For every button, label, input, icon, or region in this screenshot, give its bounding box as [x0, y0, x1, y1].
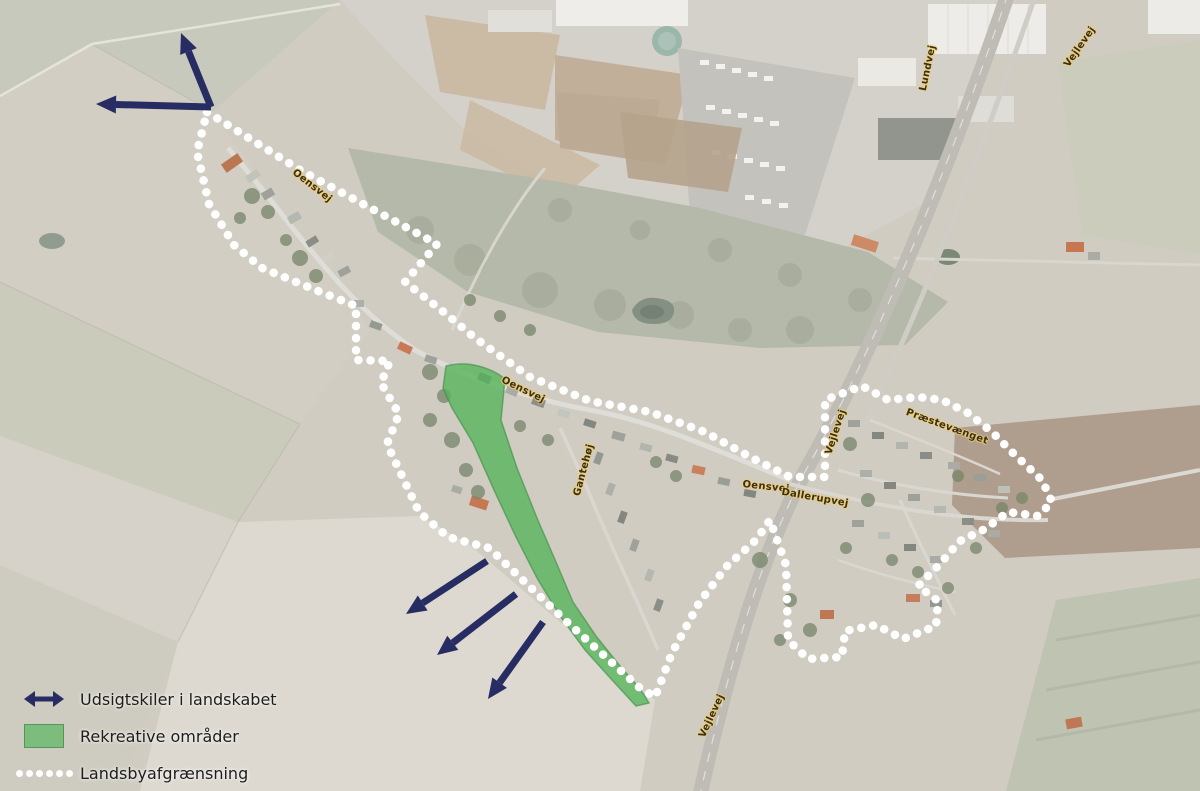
recreational-area: [443, 364, 649, 706]
legend-item-recreational-areas: Rekreative områder: [22, 723, 277, 749]
dotted-line-icon: [22, 770, 66, 777]
green-area-icon: [22, 724, 66, 748]
plan-overlays: [0, 0, 1200, 791]
map-legend: Udsigtskiler i landskabet Rekreative omr…: [22, 686, 277, 791]
legend-item-view-corridors: Udsigtskiler i landskabet: [22, 686, 277, 712]
aerial-planning-map: Oensvej Oensvej Oensvej Dallerupvej Præs…: [0, 0, 1200, 791]
legend-label-view-corridors: Udsigtskiler i landskabet: [80, 690, 277, 709]
legend-item-village-boundary: Landsbyafgrænsning: [22, 760, 277, 786]
legend-label-village-boundary: Landsbyafgrænsning: [80, 764, 248, 783]
double-arrow-icon: [22, 688, 66, 710]
legend-label-recreational-areas: Rekreative områder: [80, 727, 239, 746]
